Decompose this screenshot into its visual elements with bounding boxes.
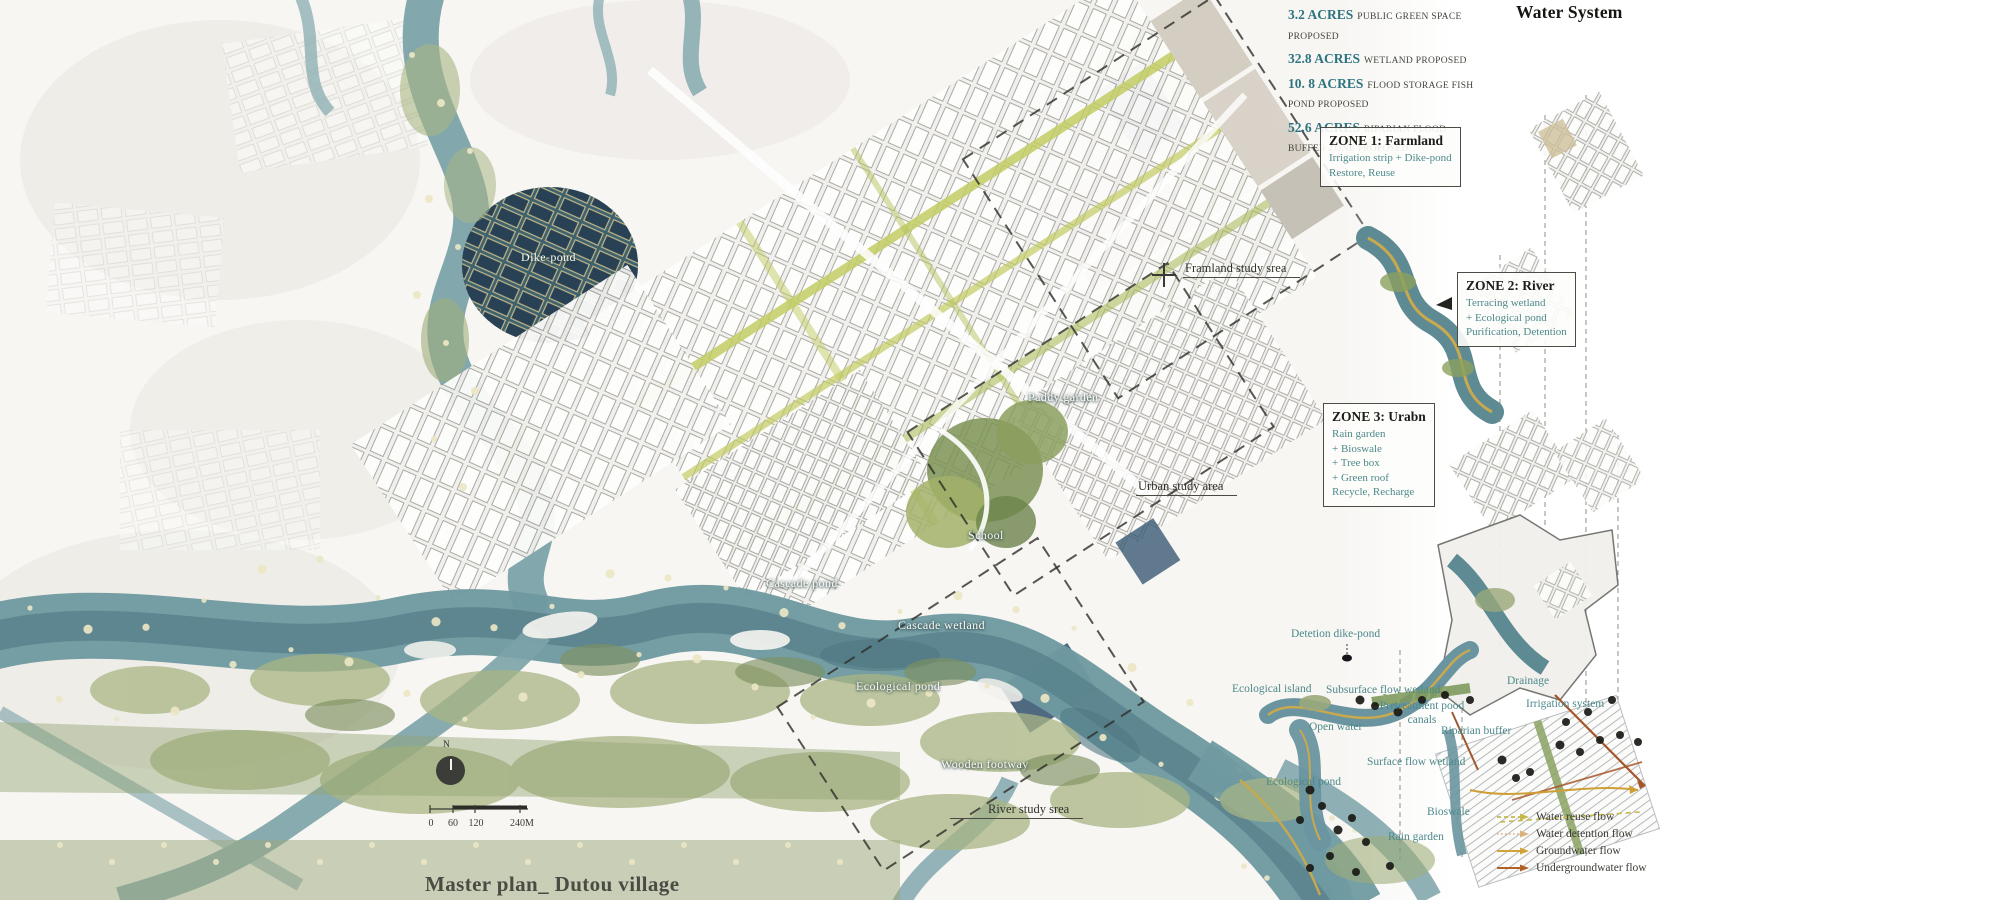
zone2-title: ZONE 2: River (1466, 278, 1567, 294)
map-label-ecological-pond: Ecological pond (856, 679, 940, 694)
map-label-cascade-wetland: Cascade wetland (898, 618, 985, 633)
water-reuse-flow-arrow-icon (1496, 812, 1530, 822)
zone3-urban-box: ZONE 3: Urabn Rain garden + Bioswale + T… (1323, 403, 1435, 507)
poster-canvas: 3.2 ACRESPUBLIC GREEN SPACE PROPOSED 32.… (0, 0, 2000, 900)
diagram-label-irrigation-system: Irrigation system (1526, 698, 1604, 710)
map-label-school: School (968, 528, 1004, 543)
pretreatment-line1: Pretreatment pood (1379, 700, 1465, 714)
zone2-line: + Ecological pond (1466, 311, 1567, 326)
zone2-river-box: ZONE 2: River Terracing wetland + Ecolog… (1457, 272, 1576, 347)
map-label-river-study-area: River study srea (950, 802, 1083, 819)
scale-tick: 240M (510, 818, 534, 829)
stat-value: 3.2 ACRES (1288, 7, 1353, 22)
diagram-label-ecological-island: Ecological island (1232, 683, 1312, 695)
zone3-line: + Green roof (1332, 471, 1426, 486)
legend-label: Undergroundwater flow (1536, 862, 1647, 874)
north-label: N (443, 740, 450, 750)
diagram-label-ecological-pond: Ecological pond (1266, 776, 1341, 788)
legend-label: Water detention flow (1536, 828, 1633, 840)
scale-tick: 60 (448, 818, 458, 829)
diagram-label-open-water: Open water (1309, 721, 1362, 733)
legend-label: Water reuse flow (1536, 811, 1614, 823)
legend-row-water-reuse: Water reuse flow (1496, 808, 1647, 825)
legend-label: Groundwater flow (1536, 845, 1621, 857)
diagram-label-drainage: Drainage (1507, 675, 1549, 687)
stat-value: 10. 8 ACRES (1288, 76, 1363, 91)
flow-legend: Water reuse flow Water detention flow Gr… (1496, 808, 1647, 876)
zone3-line: + Tree box (1332, 456, 1426, 471)
scale-tick: 120 (469, 818, 484, 829)
diagram-label-bioswale: Bioswale (1427, 806, 1470, 818)
stat-flood-storage: 10. 8 ACRESFLOOD STORAGE FISH POND PROPO… (1288, 74, 1480, 113)
water-detention-flow-arrow-icon (1496, 829, 1530, 839)
page-title: Master plan_ Dutou village (425, 872, 679, 897)
north-arrow-icon (436, 756, 465, 785)
map-label-urban-study-area: Urban study area (1136, 479, 1237, 496)
undergroundwater-flow-arrow-icon (1496, 863, 1530, 873)
stat-label: WETLAND PROPOSED (1364, 56, 1467, 66)
zone1-farmland-box: ZONE 1: Farmland Irrigation strip + Dike… (1320, 127, 1461, 187)
legend-row-undergroundwater: Undergroundwater flow (1496, 859, 1647, 876)
legend-row-groundwater: Groundwater flow (1496, 842, 1647, 859)
stat-wetland: 32.8 ACRESWETLAND PROPOSED (1288, 49, 1480, 69)
stat-public-green-space: 3.2 ACRESPUBLIC GREEN SPACE PROPOSED (1288, 5, 1480, 44)
diagram-label-detention-dike-pond: Detetion dike-pond (1291, 628, 1380, 640)
stat-value: 32.8 ACRES (1288, 51, 1360, 66)
zone1-line: Restore, Reuse (1329, 166, 1452, 181)
diagram-label-surface-flow-wetland: Surface flow wetland (1367, 756, 1465, 768)
zone1-title: ZONE 1: Farmland (1329, 133, 1452, 149)
zone1-line: Irrigation strip + Dike-pond (1329, 151, 1452, 166)
map-label-cascade-pond: Cascade pond (766, 576, 838, 591)
zone3-line: Rain garden (1332, 427, 1426, 442)
map-label-wooden-footway: Wooden footway (941, 757, 1029, 772)
diagram-label-pretreatment-pond-canals: Pretreatment pood canals (1379, 700, 1465, 727)
diagram-label-subsurface-flow-wetland: Subsurface flow wetland (1326, 684, 1440, 696)
scale-ticks: 0 60 120 240M (428, 818, 538, 832)
zone3-line: Recycle, Recharge (1332, 485, 1426, 500)
zone3-line: + Bioswale (1332, 442, 1426, 457)
map-label-dike-pond: Dike-pond (521, 250, 576, 265)
scale-bar: 0 60 120 240M (428, 799, 538, 832)
diagram-label-riparian-buffer: Riparian buffer (1441, 725, 1511, 737)
diagram-label-rain-garden: Rain garden (1388, 831, 1444, 843)
map-label-paddy-garden: Paddy garden (1028, 390, 1098, 405)
zone2-line: Purification, Detention (1466, 325, 1567, 340)
zone2-line: Terracing wetland (1466, 296, 1567, 311)
map-label-framland-study-area: Framland study srea (1183, 261, 1300, 278)
scale-bar-graphic (428, 799, 538, 813)
scale-tick: 0 (429, 818, 434, 829)
water-system-title: Water System (1516, 2, 1623, 23)
zone3-title: ZONE 3: Urabn (1332, 409, 1426, 425)
legend-row-water-detention: Water detention flow (1496, 825, 1647, 842)
groundwater-flow-arrow-icon (1496, 846, 1530, 856)
